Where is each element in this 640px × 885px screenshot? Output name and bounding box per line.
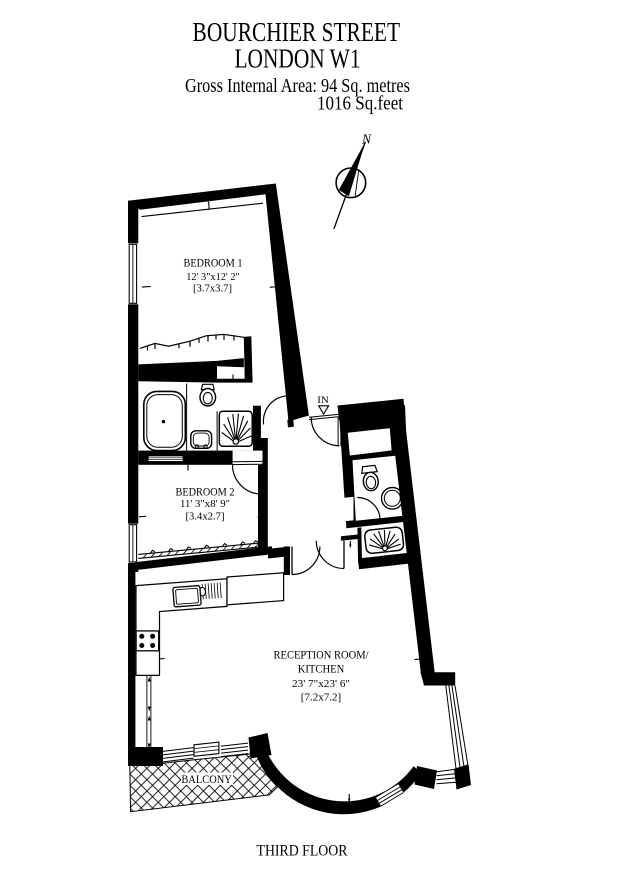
svg-text:BOURCHIER STREET: BOURCHIER STREET	[193, 17, 401, 47]
svg-text:BALCONY: BALCONY	[181, 774, 232, 786]
svg-text:KITCHEN: KITCHEN	[298, 663, 345, 676]
svg-text:11' 3"x8' 9": 11' 3"x8' 9"	[180, 498, 230, 510]
svg-text:12' 3"x12' 2": 12' 3"x12' 2"	[186, 271, 240, 283]
svg-text:23' 7"x23' 6": 23' 7"x23' 6"	[292, 678, 350, 690]
svg-text:LONDON W1: LONDON W1	[235, 44, 361, 74]
svg-text:[3.4x2.7]: [3.4x2.7]	[186, 511, 225, 523]
svg-text:THIRD FLOOR: THIRD FLOOR	[257, 843, 348, 860]
svg-text:[7.2x7.2]: [7.2x7.2]	[301, 692, 342, 704]
svg-text:IN: IN	[317, 396, 329, 406]
svg-text:RECEPTION ROOM/: RECEPTION ROOM/	[274, 649, 370, 662]
svg-text:1016 Sq.feet: 1016 Sq.feet	[317, 93, 403, 115]
svg-text:BEDROOM 2: BEDROOM 2	[176, 486, 235, 499]
svg-text:N: N	[361, 132, 372, 147]
svg-text:BEDROOM 1: BEDROOM 1	[184, 257, 243, 270]
svg-text:[3.7x3.7]: [3.7x3.7]	[193, 283, 232, 295]
